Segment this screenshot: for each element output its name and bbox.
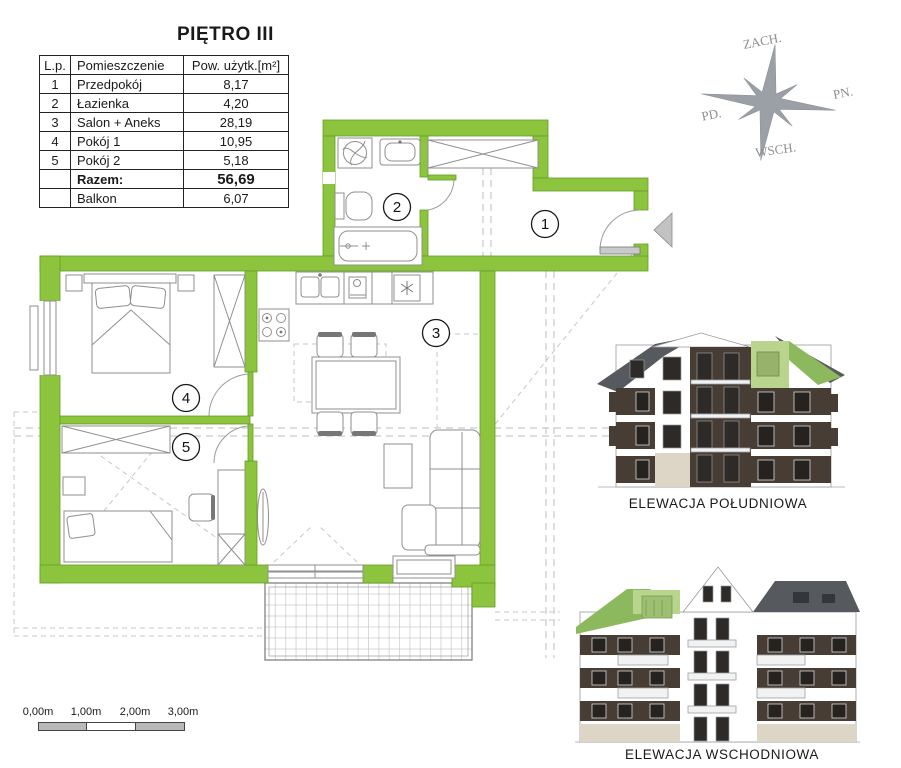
svg-text:4: 4 — [182, 390, 190, 407]
elevation-south-caption: ELEWACJA POŁUDNIOWA — [578, 496, 858, 511]
scale-label-2: 2,00m — [120, 706, 151, 718]
wardrobe-room5-icon — [62, 426, 170, 453]
elevation-east-caption: ELEWACJA WSCHODNIOWA — [572, 747, 872, 762]
balcony — [265, 583, 472, 660]
scale-label-3: 3,00m — [168, 706, 199, 718]
door-room4 — [209, 372, 253, 416]
table-row: 1 Przedpokój 8,17 — [40, 75, 289, 94]
dining-set — [312, 332, 400, 436]
door-bathroom — [428, 175, 456, 210]
sofa — [402, 430, 480, 555]
washing-machine-icon — [338, 138, 372, 168]
kitchen-counter — [296, 272, 433, 304]
elevation-east — [568, 560, 868, 745]
desk-and-chair — [189, 470, 245, 565]
col-header-area: Pow. użytk.[m²] — [184, 56, 289, 75]
scale-label-1: 1,00m — [71, 706, 102, 718]
side-table-icon — [384, 444, 412, 488]
window-room4 — [30, 301, 62, 375]
hall-wardrobe-icon — [428, 140, 538, 168]
elevation-south — [590, 330, 848, 492]
col-header-lp: L.p. — [40, 56, 71, 75]
radiator-icon — [258, 489, 269, 545]
bathtub-icon — [334, 227, 422, 265]
door-room5 — [214, 424, 253, 463]
compass-label-north: PN. — [832, 83, 854, 102]
room-label-1: 1 — [532, 211, 559, 238]
room-label-5: 5 — [173, 434, 200, 461]
stove-icon — [259, 309, 289, 341]
bedroom-double-bed — [66, 274, 194, 373]
door-entrance — [600, 210, 672, 254]
scale-label-0: 0,00m — [23, 706, 54, 718]
east-left-wing — [580, 635, 680, 721]
scale-bar: 0,00m 1,00m 2,00m 3,00m — [0, 706, 220, 736]
entrance-arrow-icon — [654, 213, 672, 247]
south-right-wing — [751, 388, 838, 483]
room-label-2: 2 — [384, 194, 411, 221]
compass-rose: ZACH. PN. PD. WSCH. — [688, 28, 868, 168]
east-right-wing — [757, 635, 856, 721]
compass-label-south: PD. — [700, 105, 722, 124]
tv-stand-icon — [393, 556, 455, 578]
door-balcony — [268, 526, 363, 578]
scale-bar-graphic — [38, 722, 185, 731]
svg-text:3: 3 — [432, 325, 440, 342]
room-label-3: 3 — [423, 320, 450, 347]
floorplan-sheet: { "title": "PIĘTRO III", "table": { "hea… — [0, 0, 901, 768]
svg-text:1: 1 — [541, 216, 549, 233]
page-title: PIĘTRO III — [177, 24, 274, 46]
sink-icon — [380, 139, 420, 165]
table-header-row: L.p. Pomieszczenie Pow. użytk.[m²] — [40, 56, 289, 75]
toilet-icon — [335, 192, 372, 220]
single-bed — [63, 477, 172, 562]
svg-text:2: 2 — [393, 199, 401, 216]
compass-label-west: ZACH. — [742, 30, 783, 52]
svg-text:5: 5 — [182, 439, 190, 456]
col-header-room: Pomieszczenie — [71, 56, 184, 75]
wardrobe-room4-icon — [214, 275, 245, 367]
room-label-4: 4 — [173, 385, 200, 412]
